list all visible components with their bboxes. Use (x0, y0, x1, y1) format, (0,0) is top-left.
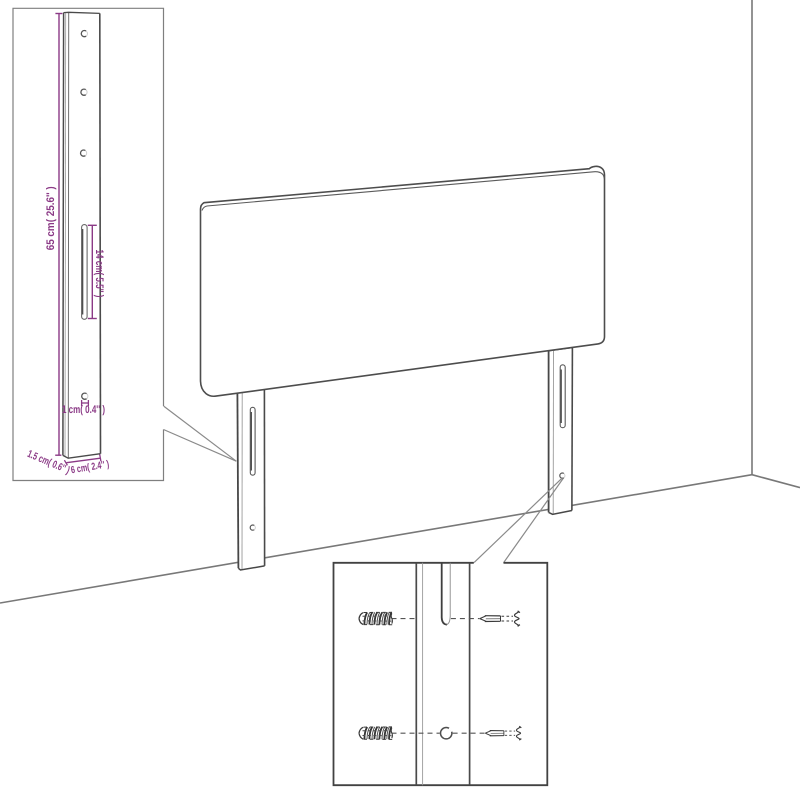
svg-text:14 cm( 5.5'' ): 14 cm( 5.5'' ) (93, 250, 105, 298)
svg-text:1 cm( 0.4'' ): 1 cm( 0.4'' ) (62, 404, 105, 416)
svg-text:65 cm( 25.6'' ): 65 cm( 25.6'' ) (45, 186, 57, 250)
